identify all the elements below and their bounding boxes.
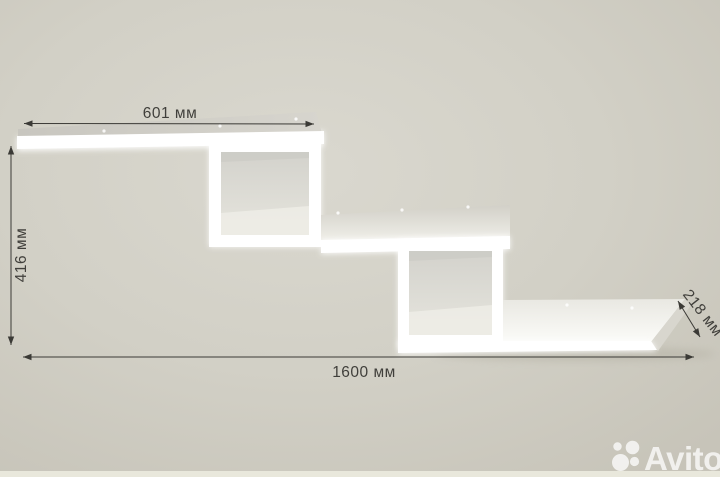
shelf-render: 601 мм 416 мм 218 мм 1600 мм Avito bbox=[0, 0, 720, 477]
dimension-line-top bbox=[24, 124, 314, 125]
cube-shelf-2 bbox=[398, 240, 503, 347]
dimension-label-width-total: 1600 мм bbox=[332, 364, 396, 381]
dimension-label-width-top: 601 мм bbox=[143, 105, 197, 122]
photo-bottom-strip bbox=[0, 471, 720, 477]
dimension-label-height-left: 416 мм bbox=[13, 228, 30, 282]
product-photo-shelf-with-dimensions: 601 мм 416 мм 218 мм 1600 мм Avito bbox=[0, 0, 720, 477]
cube-shelf-1 bbox=[209, 140, 321, 247]
